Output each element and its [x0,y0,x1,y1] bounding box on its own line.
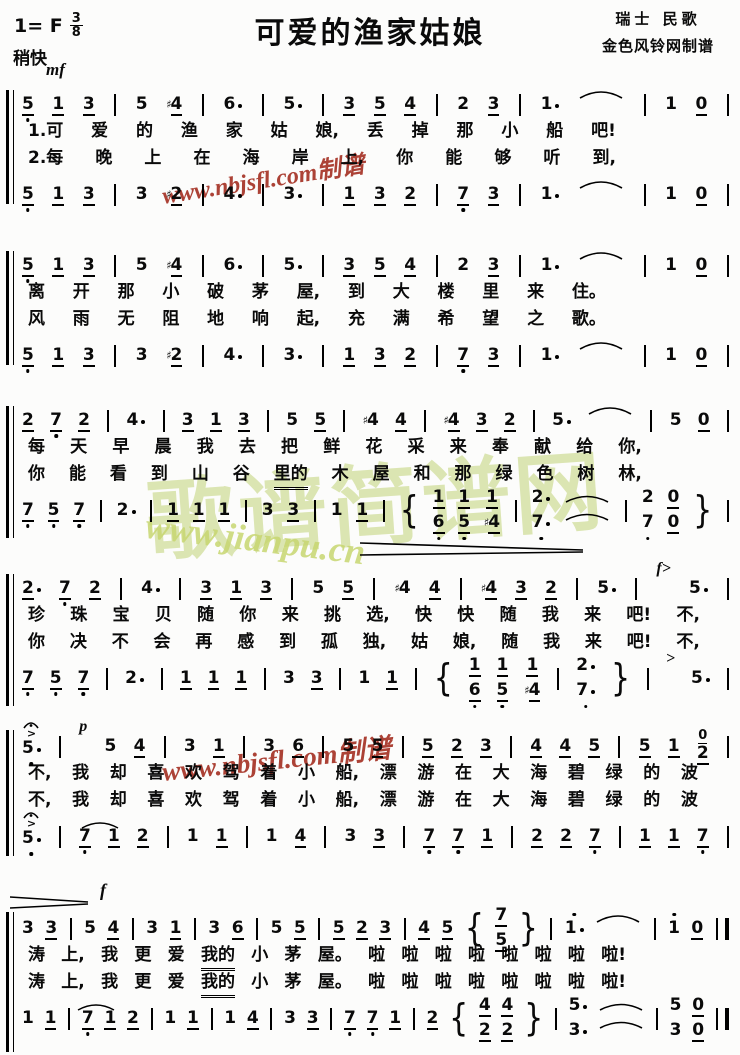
low-octave-dot [30,852,34,856]
note: 2 [125,669,144,690]
lyric-syllable: 孤 [321,631,338,658]
note-digit: 0 [698,411,710,432]
voice-line: 5133♯24313273110 [22,180,730,210]
rest-note: 0 [696,346,708,367]
note-digit: 3 [136,185,148,206]
note: 7 [22,501,34,522]
lyric-syllable: 小 [298,762,315,789]
lyrics-line: 每天早晨我去把鲜花采来奉献给你, [28,436,642,463]
fermata-note: >5 [22,719,41,760]
note-digit: 7 [457,185,469,206]
lyrics-line: 不,我却喜欢驾着小船,漂游在大海碧绿的波 [28,762,698,789]
note-digit: 0 [691,919,703,940]
note-digit: 0 [692,1021,704,1042]
barline [436,255,438,277]
dynamic-mark: f> [656,560,670,578]
lyric-syllable: 姑 [271,120,288,147]
lyric-syllable: 独, [363,631,386,658]
barline [120,578,122,600]
lyric-syllable: 你 [28,463,45,490]
note-digit: 5 [639,737,651,758]
note: 3 [476,411,488,432]
lyric-syllable: 在 [193,147,210,174]
lyric-syllable: 波 [681,762,698,789]
lyric-syllable: 吧! [626,604,651,631]
low-octave-dot [26,524,30,528]
note: 1 [164,1009,176,1030]
note: 6 [223,256,242,277]
lyric-syllable: 珠 [70,604,87,631]
note-digit: 4 [134,737,146,758]
note: 3 [184,737,196,758]
note-digit: 3 [283,185,295,206]
note-digit: 3 [184,737,196,758]
note-digit: 2 [171,346,183,367]
sharp-icon: ♯ [363,416,368,426]
note-digit: 1 [358,669,370,690]
low-octave-dot [83,850,87,854]
note-digit: 1 [389,1009,401,1030]
duration-dot [555,265,559,269]
note: 1 [22,1009,34,1030]
chord: 00 [692,996,704,1042]
song-origin: 瑞士 民歌 [602,8,714,29]
lyric-syllable: 上 [144,147,161,174]
note: 3 [311,669,323,690]
barline [211,1008,213,1030]
lyric-syllable: 那 [118,281,135,308]
lyric-syllable: 地 [207,308,224,335]
barline [415,668,417,690]
system-2: 5135♯46535423110离开那小破茅屋,到大楼里来住。风雨无阻地响起,充… [6,241,734,371]
note: 1 [187,827,199,848]
tie-arc [595,908,641,927]
note: 2 [504,411,516,432]
lyric-syllable: 娘, [453,631,476,658]
low-octave-dot [26,208,30,212]
barline [727,94,729,116]
lyric-syllable: 我 [542,604,559,631]
note: 2 [22,579,41,600]
lyric-syllable: 船, [336,789,359,816]
sharp-icon: ♯ [166,351,171,361]
lyrics-line: 1.可爱的渔家姑娘,丢掉那小船吧! [28,120,616,147]
note-digit: 1 [52,95,64,116]
low-octave-dot [437,537,441,541]
chord: 27 [642,488,654,534]
barline [533,410,535,432]
note: 7 [50,411,62,432]
barline [576,578,578,600]
note: 2 [457,256,469,277]
barline [114,255,116,277]
note-digit: 1 [52,256,64,277]
note-digit: 7 [423,827,435,848]
note-digit: 2 [22,411,34,432]
chord: 00 [667,488,679,534]
note: 7 [367,1009,379,1030]
lyric-syllable: 我的 [201,971,235,998]
lyrics-line: 你能看到山谷里的木屋和那绿色树林, [28,463,642,490]
note-digit: 5 [495,931,507,952]
note-digit: 3 [476,411,488,432]
note: 3 [283,346,302,367]
note: 3 [263,737,275,758]
note: 4 [429,579,441,600]
lyric-syllable: 船, [336,762,359,789]
note: 6 [469,681,481,702]
lyric-syllable: 小 [251,971,268,998]
credits: 瑞士 民歌 金色风铃网制谱 [602,8,714,56]
note-digit: 2 [504,411,516,432]
lyric-syllable: 的 [136,120,153,147]
barline [267,410,269,432]
note-digit: 1 [343,185,355,206]
note: 5 [314,411,326,432]
note-digit: 3 [22,919,34,940]
note: 5 [283,256,302,277]
note-digit: 3 [287,501,299,522]
note: ♯4 [363,411,379,432]
high-octave-dot [572,913,576,917]
note: 1 [224,1009,236,1030]
note-digit: 3 [238,411,250,432]
duration-dot [238,355,242,359]
note: 5 [271,919,283,940]
note-digit: 4 [418,919,430,940]
low-octave-dot [26,279,30,283]
note-digit: 5 [343,737,355,758]
low-octave-dot [30,762,34,766]
barline [619,826,621,848]
lyric-syllable: 宝 [113,604,130,631]
note: 1 [187,1009,199,1030]
lyric-syllable: 岸 [292,147,309,174]
barline [322,184,324,206]
note-digit: 4 [448,411,460,432]
note-digit: 2 [576,656,588,677]
note: ♯2 [166,185,182,206]
note-digit: 1 [668,919,680,940]
lyric-syllable: 爱 [91,120,108,147]
note: 4 [134,737,146,758]
lyric-syllable: 娘, [315,120,338,147]
rest-note: 0 [696,95,708,116]
chord: 27 [532,488,551,534]
lyric-syllable: 绿 [606,789,623,816]
note: 3 [83,346,95,367]
note: 5 [422,737,434,758]
lyric-syllable: 来 [450,436,467,463]
duration-dot [612,588,616,592]
note: 3 [287,501,299,522]
note-digit: 3 [83,95,95,116]
note: 5 [689,579,708,600]
note: 2 [642,488,654,509]
note-digit: 4 [530,737,542,758]
note-digit: 7 [59,579,71,600]
note: 2 [451,737,463,758]
note-digit: 5 [294,919,306,940]
lyric-syllable: 爱 [168,944,185,971]
note: ♯4 [443,411,459,432]
low-octave-dot [348,1032,352,1036]
barline [727,345,729,367]
barline [555,1008,557,1030]
low-octave-dot [26,118,30,122]
duration-dot [580,928,584,932]
note: 5 [312,579,324,600]
lyric-syllable: 的 [643,762,660,789]
low-octave-dot [86,1032,90,1036]
barline [644,345,646,367]
note-digit: 1 [665,185,677,206]
note-digit: 5 [691,669,703,690]
lyric-syllable: 树 [577,463,594,490]
lyric-syllable: 来 [584,604,601,631]
barline [245,500,247,522]
note-digit: 1 [164,1009,176,1030]
lyric-syllable: 上, [61,971,84,998]
note: 2 [531,827,543,848]
note-digit: 4 [395,411,407,432]
note: 5 [136,256,148,277]
lyric-syllable: 的 [643,789,660,816]
lyric-syllable: 海 [243,147,260,174]
note: 2 [404,185,416,206]
lyric-syllable: 欢 [185,762,202,789]
lyric-syllable: 屋 [373,463,390,490]
lyric-syllable: 驾 [223,789,240,816]
rest-note: 0 [696,256,708,277]
chord: 16 [469,656,481,702]
barline [318,918,320,940]
low-octave-dot [456,850,460,854]
note-digit: 7 [78,669,90,690]
note: 3 [283,185,302,206]
barline [161,668,163,690]
note-digit: 5 [588,737,600,758]
note-digit: 1 [343,346,355,367]
lyric-syllable: 啦 [435,971,452,998]
note-digit: 5 [22,739,34,760]
lyric-syllable: 驾 [223,762,240,789]
note: 1 [52,256,64,277]
barline [635,578,637,600]
note: 1 [208,669,220,690]
note-digit: 1 [469,656,481,677]
note-digit: 0 [696,346,708,367]
note-digit: 1 [433,488,445,509]
barline [618,736,620,758]
lyric-syllable: 随 [501,631,518,658]
barline [727,500,729,522]
note-digit: 2 [532,488,544,509]
note: 5 [343,737,355,758]
rest-note: 0 [667,488,679,509]
barline [343,410,345,432]
note: 6 [223,95,242,116]
note: 4 [559,737,571,758]
lyric-syllable: 涛 [28,971,45,998]
note-digit: 5 [442,919,454,940]
note: 6 [232,919,244,940]
note-digit: 0 [696,256,708,277]
tempo-marking: 稍快 [13,44,47,69]
chord: 1♯4 [524,656,540,702]
lyric-syllable: 给 [576,436,593,463]
note-digit: 6 [223,256,235,277]
note-digit: 7 [495,906,507,927]
note-digit: 1 [565,919,577,940]
brace: { [400,492,419,530]
low-octave-dot [54,434,58,438]
note: 5 [588,737,600,758]
rest-note: 0 [692,996,704,1017]
tie-arc [587,400,633,419]
duration-dot [238,194,242,198]
lyric-syllable: 掉 [412,120,429,147]
note-digit: 2 [457,256,469,277]
note: 3 [670,1021,682,1042]
chord: 75 [495,906,507,952]
note-digit: 4 [107,919,119,940]
barline [132,918,134,940]
note-digit: 4 [126,411,138,432]
lyric-syllable: 不, [676,631,699,658]
note: 3 [45,919,57,940]
barline [550,918,552,940]
note: 3 [373,827,385,848]
barline [324,826,326,848]
system-1: 5135♯465354231101.可爱的渔家姑娘,丢掉那小船吧!2.每晚上在海… [6,78,734,210]
lyric-syllable: 喜 [147,789,164,816]
lyric-syllable: 希 [438,308,455,335]
note-digit: 3 [283,346,295,367]
note: 3 [374,185,386,206]
lyric-syllable: 漂 [380,762,397,789]
barline [519,184,521,206]
lyric-syllable: 木 [332,463,349,490]
note-digit: 2 [451,737,463,758]
note: 1 [343,185,355,206]
voice-line: >5p543136555234455102 [22,732,730,762]
lyric-syllable: 啦 [368,944,385,971]
chord: 53 [569,996,588,1042]
note: ♯4 [394,579,410,600]
note-digit: 5 [22,256,34,277]
note-digit: 3 [311,669,323,690]
note-digit: 5 [271,919,283,940]
note: 4 [418,919,430,940]
note: 1 [104,1009,116,1030]
note-digit: 7 [589,827,601,848]
lyric-syllable: 你 [239,604,256,631]
lyric-syllable: 能 [69,463,86,490]
tie-arc [578,245,624,264]
note-digit: 7 [344,1009,356,1030]
note: 4 [126,411,145,432]
note: 5 [22,95,34,116]
note-digit: 2 [127,1009,139,1030]
lyrics-line: 你决不会再感到孤独,姑娘,随我来吧!不, [28,631,700,658]
final-barline [716,1008,729,1030]
note-digit: 3 [83,185,95,206]
note-digit: 0 [667,488,679,509]
note: 5 [497,681,509,702]
note-digit: 3 [374,185,386,206]
lyric-syllable: 茅 [285,944,302,971]
note-digit: 0 [696,95,708,116]
lyric-syllable: 晚 [95,147,112,174]
note-digit: 5 [50,669,62,690]
lyric-syllable: 更 [134,971,151,998]
lyric-syllable: 在 [455,762,472,789]
barline [150,500,152,522]
note: 5 [458,513,470,534]
note-digit: 1 [52,346,64,367]
low-octave-dot [646,537,650,541]
lyric-syllable: 大 [393,281,410,308]
lyric-syllable: 谷 [233,463,250,490]
note: 7 [344,1009,356,1030]
note-digit: 2 [531,827,543,848]
lyric-syllable: 破 [207,281,224,308]
note-digit: 4 [367,411,379,432]
note-digit: 3 [262,501,274,522]
note: 7 [642,513,654,534]
note: 5 [333,919,345,940]
note: 3 [345,827,357,848]
note-digit: 4 [529,681,541,702]
low-octave-dot [371,1032,375,1036]
note-digit: 5 [283,256,295,277]
barline [59,736,61,758]
barline [727,668,729,690]
lyric-syllable: 我的 [201,944,235,971]
barline [70,918,72,940]
barline [727,255,729,277]
note-digit: 5 [374,95,386,116]
sharp-icon: ♯ [166,100,171,110]
note: 1 [486,488,498,509]
note: 2 [427,1009,439,1030]
note-digit: 2 [404,185,416,206]
note-digit: 1 [458,488,470,509]
divisi-note: 02 [697,729,709,765]
note: 3 [200,579,212,600]
lyric-syllable: 你 [28,631,45,658]
duration-dot [132,510,136,514]
lyric-syllable: 来 [585,631,602,658]
note: 7 [452,827,464,848]
duration-dot [583,1005,587,1009]
note-digit: 2 [697,744,709,765]
note-digit: 1 [208,669,220,690]
note: 3 [343,256,355,277]
note-digit: 2 [457,95,469,116]
note-digit: 3 [260,579,272,600]
barline [402,736,404,758]
note: 2 [532,488,551,509]
duration-dot [298,194,302,198]
note-digit: 5 [22,185,34,206]
lyric-syllable: 却 [110,789,127,816]
note-digit: 1 [224,1009,236,1030]
note-digit: 3 [488,185,500,206]
note-digit: 5 [670,996,682,1017]
note: 3 [208,919,220,940]
